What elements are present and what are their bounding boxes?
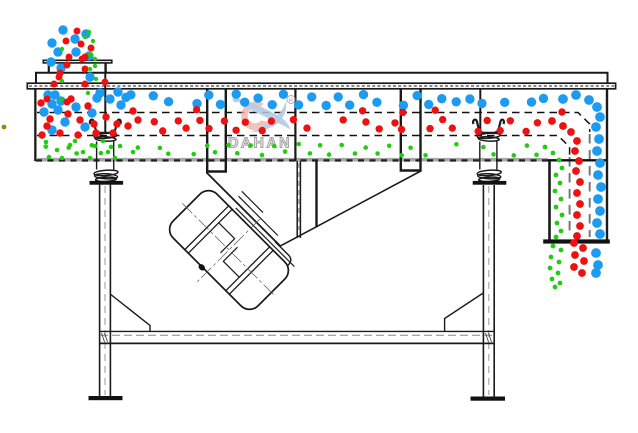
svg-text:R: R [289, 98, 293, 104]
svg-text:DAHAN: DAHAN [228, 136, 292, 152]
